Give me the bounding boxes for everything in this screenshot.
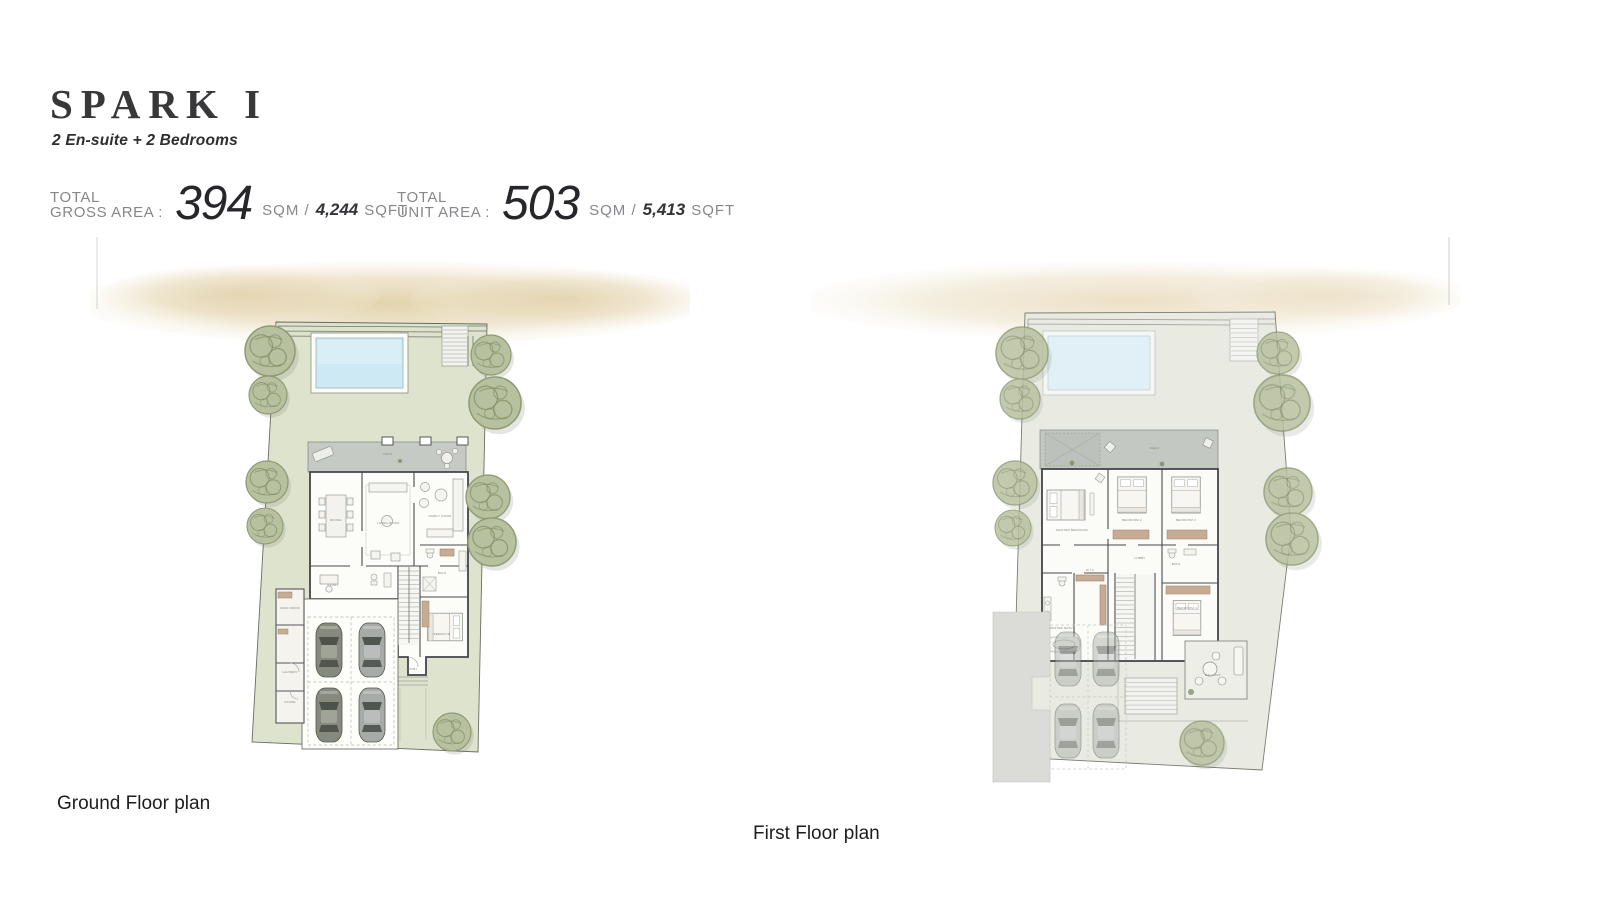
svg-text:BATH: BATH	[1172, 562, 1181, 566]
dining-furniture	[319, 495, 353, 537]
brochure-page: SPARK I 2 En-suite + 2 Bedrooms TOTAL GR…	[0, 0, 1600, 900]
svg-text:BEDROOM: BEDROOM	[434, 632, 451, 636]
ghost-car	[1055, 704, 1081, 758]
svg-text:BEDROOM 4: BEDROOM 4	[1177, 606, 1197, 610]
stat-unit-units: SQM / 5,413 SQFT	[589, 200, 735, 222]
stat-unit-label: TOTAL UNIT AREA :	[397, 190, 490, 222]
svg-text:BATH: BATH	[438, 571, 447, 575]
svg-text:MAID ROOM: MAID ROOM	[280, 606, 300, 610]
svg-text:ENTRY: ENTRY	[406, 667, 417, 671]
car	[316, 688, 342, 742]
house-terrace	[1040, 430, 1218, 469]
pool	[1043, 331, 1155, 395]
pool	[311, 333, 408, 393]
first-floor-plan-drawing: DECK MASTER BEDROOM BEDROOM 2 BEDROOM 3 …	[810, 233, 1460, 833]
svg-text:LIVING ROOM: LIVING ROOM	[377, 521, 400, 525]
svg-text:FAMILY ROOM: FAMILY ROOM	[429, 514, 452, 518]
stairs	[1116, 574, 1155, 660]
car	[359, 688, 385, 742]
svg-text:MASTER BATH: MASTER BATH	[1049, 626, 1072, 630]
stat-gross-area: TOTAL GROSS AREA : 394 SQM / 4,244 SQFT	[50, 186, 408, 222]
page-title: SPARK I	[50, 84, 268, 125]
svg-text:DINING: DINING	[330, 518, 342, 522]
svg-text:MASTER BEDROOM: MASTER BEDROOM	[1056, 528, 1088, 532]
svg-text:W.I.C: W.I.C	[1086, 568, 1095, 572]
stairs	[399, 567, 420, 645]
car	[316, 623, 342, 677]
svg-text:STUDY: STUDY	[327, 583, 338, 587]
first-floor-caption: First Floor plan	[753, 823, 880, 845]
svg-text:BEDROOM 3: BEDROOM 3	[1176, 518, 1196, 522]
svg-text:LOBBY: LOBBY	[1134, 556, 1145, 560]
stat-gross-value: 394	[175, 186, 252, 222]
svg-text:LAUNDRY: LAUNDRY	[282, 670, 298, 674]
ghost-car	[1093, 632, 1119, 686]
ground-floor-caption: Ground Floor plan	[57, 793, 210, 815]
svg-text:BALCONY: BALCONY	[1205, 673, 1221, 677]
svg-text:BEDROOM 2: BEDROOM 2	[1122, 518, 1142, 522]
svg-text:STORE: STORE	[284, 700, 295, 704]
balcony	[1185, 641, 1247, 699]
garage-court	[302, 599, 398, 749]
stat-gross-label: TOTAL GROSS AREA :	[50, 190, 163, 222]
stat-gross-units: SQM / 4,244 SQFT	[262, 200, 408, 222]
ghost-car	[1093, 704, 1119, 758]
ghost-car	[1055, 632, 1081, 686]
svg-text:DECK: DECK	[1150, 446, 1159, 450]
car	[359, 623, 385, 677]
svg-text:DECK: DECK	[383, 452, 392, 456]
stat-unit-value: 503	[502, 186, 579, 222]
stat-unit-area: TOTAL UNIT AREA : 503 SQM / 5,413 SQFT	[397, 186, 735, 222]
ground-floor-plan-drawing: DECK DINING LIVING ROOM FAMILY ROOM STUD…	[90, 233, 690, 803]
page-subtitle: 2 En-suite + 2 Bedrooms	[52, 132, 238, 150]
